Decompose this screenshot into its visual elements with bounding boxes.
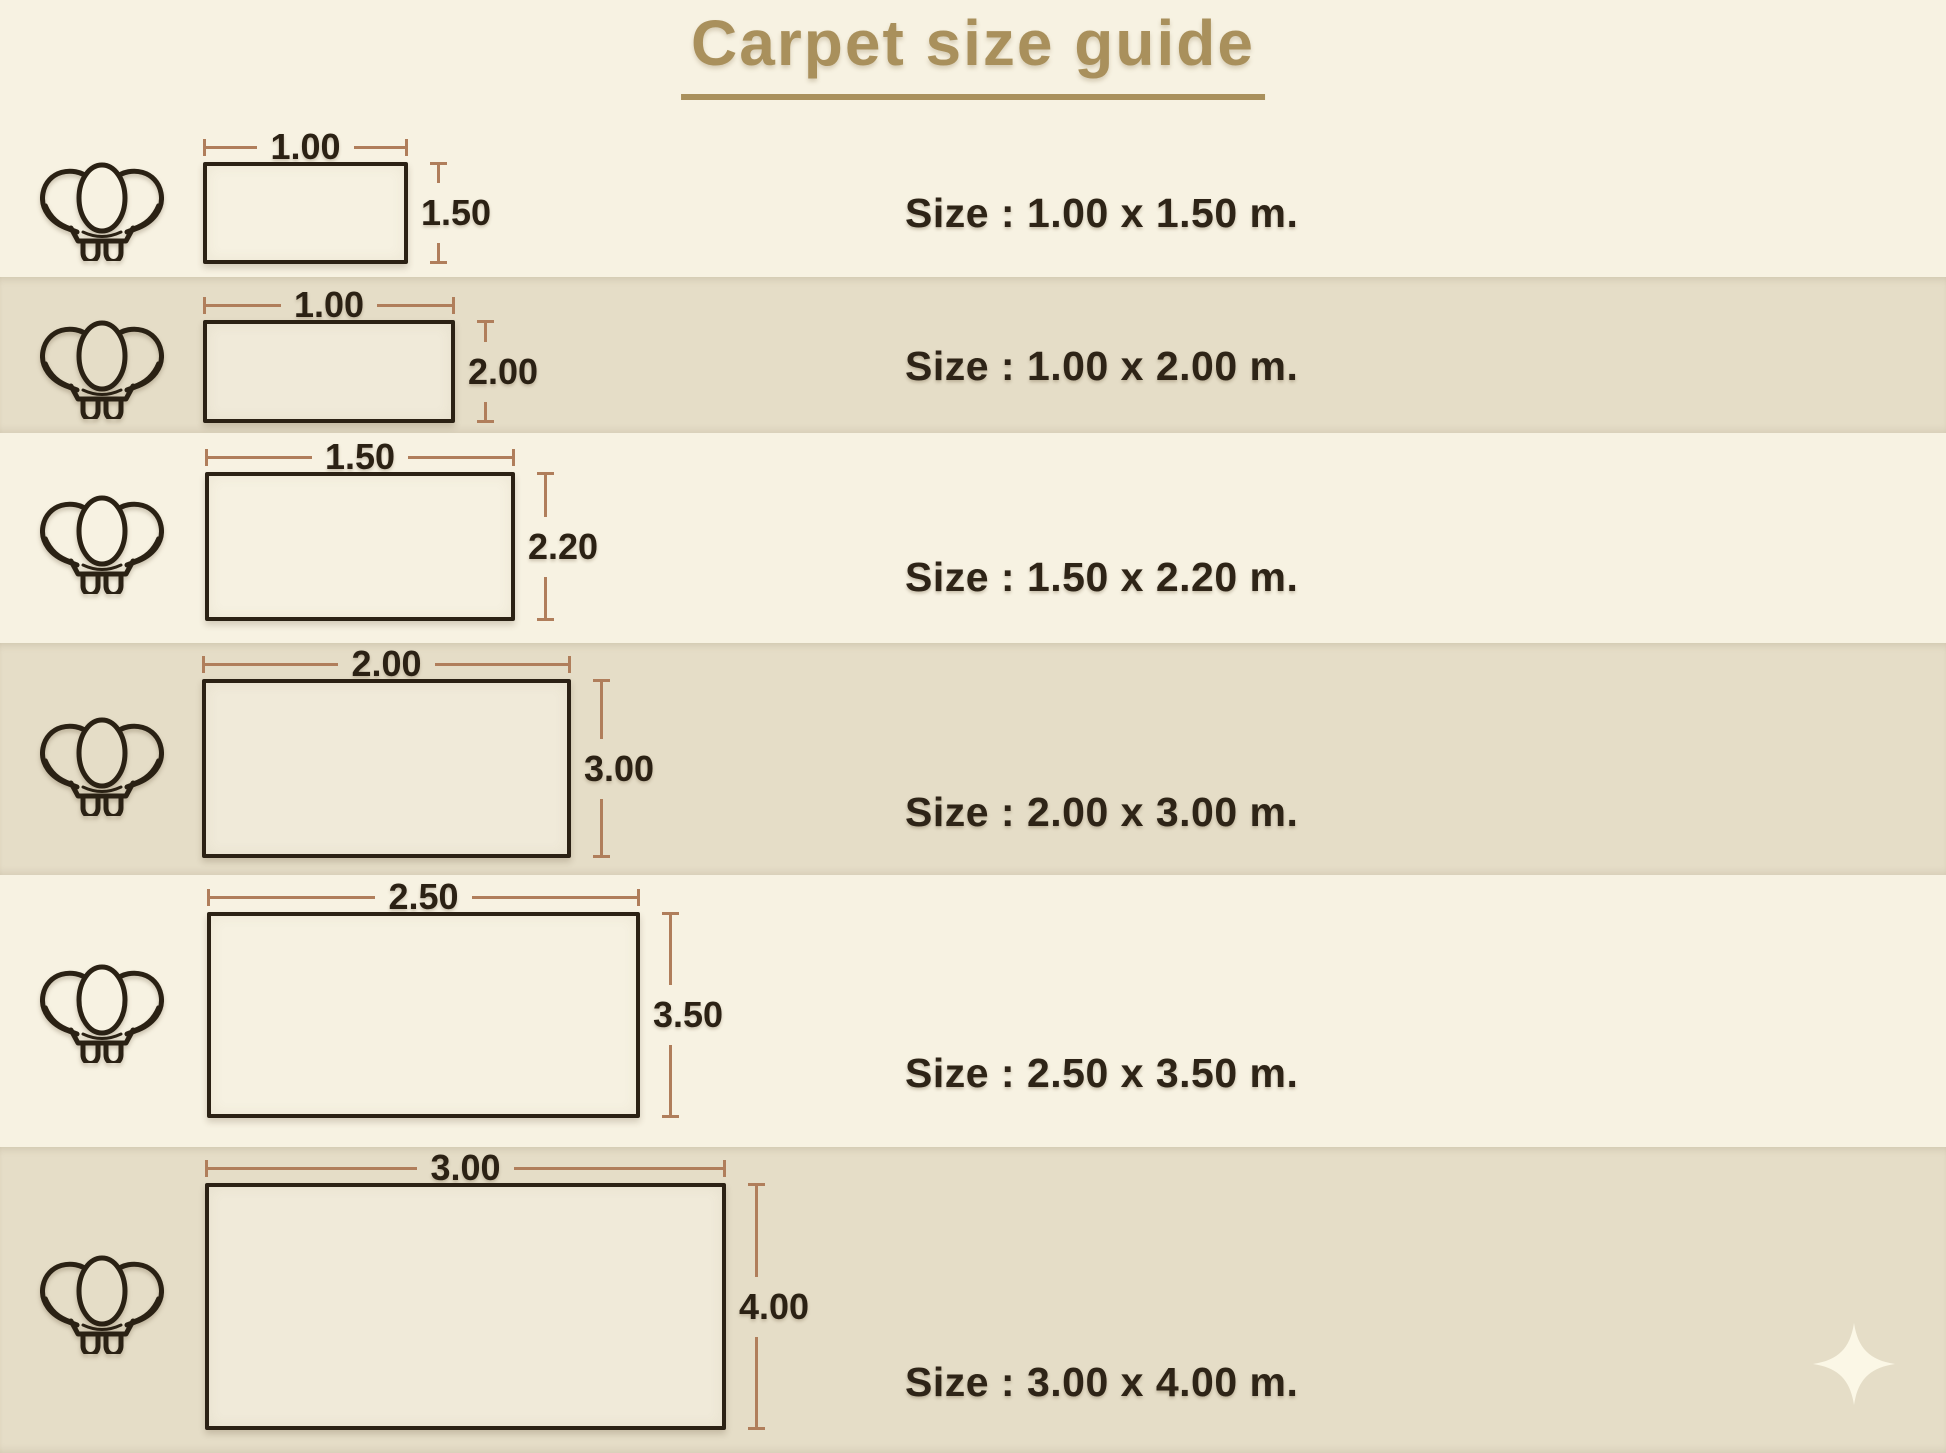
dimension-line (203, 146, 257, 149)
width-dim-label: 1.00 (270, 129, 340, 165)
height-dimension: 1.50 (430, 162, 446, 264)
height-dimension: 2.20 (537, 472, 553, 621)
dimension-line (354, 146, 408, 149)
carpet-rect (207, 912, 640, 1118)
armchair-top-view-icon (37, 161, 167, 261)
height-dimension: 2.00 (477, 320, 493, 423)
height-dim-label: 4.00 (739, 1289, 809, 1325)
armchair-top-view-icon (37, 1254, 167, 1354)
armchair-top-view-icon (37, 716, 167, 816)
carpet-row: 3.00 4.00 Size : 3.00 x 4.00 m. (0, 1147, 1946, 1453)
dimension-line (435, 663, 571, 666)
dimension-line (202, 663, 338, 666)
height-dim-label: 2.20 (528, 529, 598, 565)
carpet-rect (203, 320, 455, 423)
dimension-line (472, 896, 640, 899)
height-dimension: 3.00 (593, 679, 609, 858)
dimension-line (755, 1337, 758, 1431)
width-dimension: 2.00 (202, 646, 571, 682)
width-dimension: 1.00 (203, 287, 455, 323)
height-dim-label: 2.00 (468, 354, 538, 390)
dimension-line (600, 679, 603, 739)
height-dimension: 4.00 (748, 1183, 764, 1430)
dimension-line (484, 320, 487, 342)
width-dimension: 1.50 (205, 439, 515, 475)
dimension-line (205, 456, 312, 459)
width-dimension: 3.00 (205, 1150, 726, 1186)
dimension-line (514, 1167, 726, 1170)
width-dimension: 2.50 (207, 879, 640, 915)
width-dimension: 1.00 (203, 129, 408, 165)
dimension-line (203, 304, 281, 307)
dimension-line (544, 577, 547, 622)
dimension-line (205, 1167, 417, 1170)
size-label: Size : 2.00 x 3.00 m. (905, 788, 1298, 836)
width-dim-label: 1.00 (294, 287, 364, 323)
size-label: Size : 1.50 x 2.20 m. (905, 553, 1298, 601)
dimension-line (600, 799, 603, 859)
dimension-line (669, 912, 672, 985)
dimension-line (755, 1183, 758, 1277)
dimension-line (437, 243, 440, 264)
dimension-line (377, 304, 455, 307)
dimension-line (437, 162, 440, 183)
carpet-row: 2.00 3.00 Size : 2.00 x 3.00 m. (0, 643, 1946, 875)
carpet-row: 2.50 3.50 Size : 2.50 x 3.50 m. (0, 875, 1946, 1147)
width-dim-label: 3.00 (430, 1150, 500, 1186)
page-title: Carpet size guide (681, 6, 1265, 100)
height-dimension: 3.50 (662, 912, 678, 1118)
carpet-size-guide-infographic: Carpet size guide 1.00 1.50 (0, 0, 1946, 1453)
carpet-row: Carpet size guide 1.00 1.50 (0, 0, 1946, 277)
dimension-line (669, 1045, 672, 1118)
size-label: Size : 3.00 x 4.00 m. (905, 1358, 1298, 1406)
armchair-top-view-icon (37, 319, 167, 419)
carpet-rect (203, 162, 408, 264)
width-dim-label: 2.00 (351, 646, 421, 682)
carpet-row: 1.50 2.20 Size : 1.50 x 2.20 m. (0, 433, 1946, 643)
dimension-line (207, 896, 375, 899)
carpet-rect (202, 679, 571, 858)
size-label: Size : 1.00 x 1.50 m. (905, 189, 1298, 237)
armchair-top-view-icon (37, 963, 167, 1063)
width-dim-label: 1.50 (325, 439, 395, 475)
size-label: Size : 1.00 x 2.00 m. (905, 342, 1298, 390)
height-dim-label: 3.50 (653, 997, 723, 1033)
dimension-line (484, 402, 487, 424)
size-label: Size : 2.50 x 3.50 m. (905, 1049, 1298, 1097)
armchair-top-view-icon (37, 494, 167, 594)
dimension-line (408, 456, 515, 459)
carpet-rect (205, 472, 515, 621)
four-point-sparkle-icon (1813, 1323, 1895, 1405)
carpet-row: 1.00 2.00 Size : 1.00 x 2.00 m. (0, 277, 1946, 433)
carpet-rect (205, 1183, 726, 1430)
width-dim-label: 2.50 (388, 879, 458, 915)
height-dim-label: 3.00 (584, 751, 654, 787)
dimension-line (544, 472, 547, 517)
height-dim-label: 1.50 (421, 195, 491, 231)
